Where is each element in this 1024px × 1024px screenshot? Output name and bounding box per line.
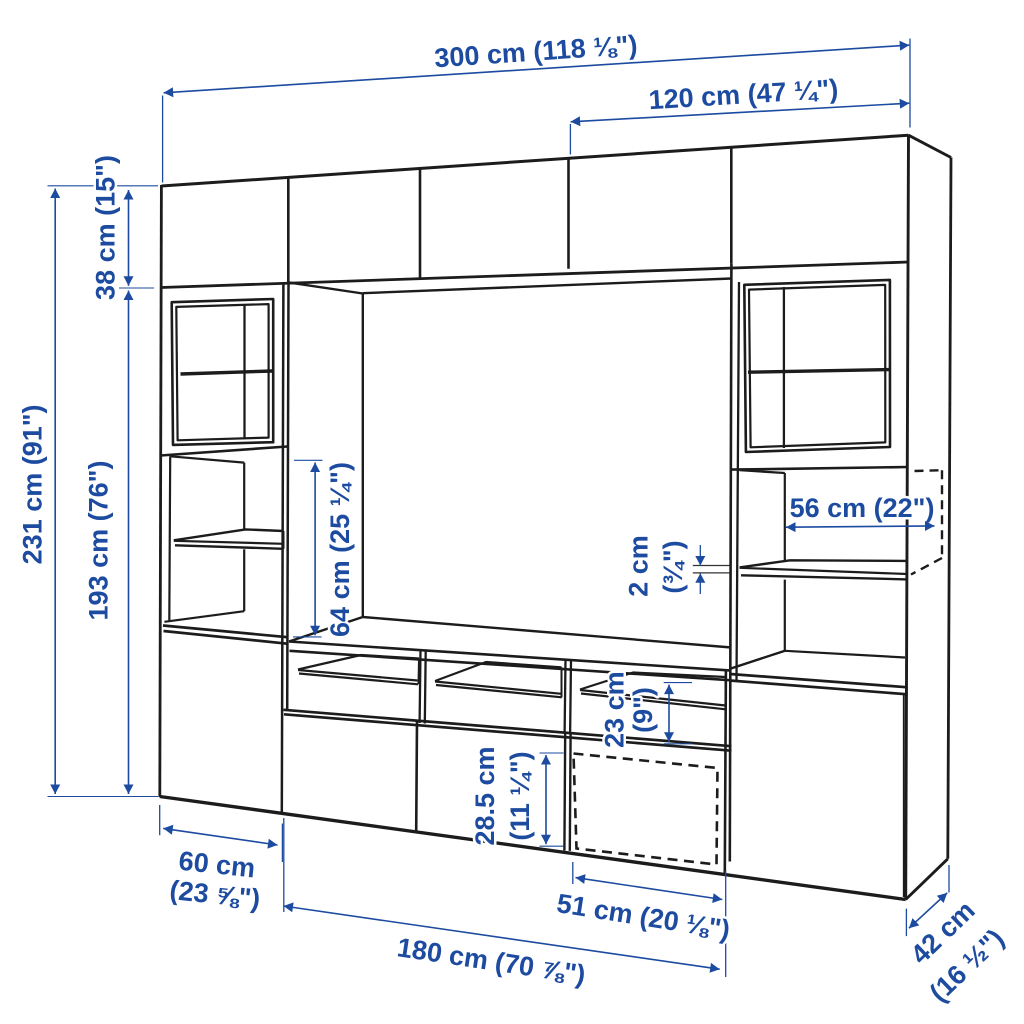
svg-text:231 cm (91"): 231 cm (91"): [18, 404, 48, 564]
svg-text:64 cm (25 ¼"): 64 cm (25 ¼"): [325, 462, 355, 637]
svg-text:28.5 cm: 28.5 cm: [470, 746, 500, 845]
svg-text:193 cm (76"): 193 cm (76"): [83, 461, 113, 621]
svg-text:56 cm (22"): 56 cm (22"): [790, 493, 935, 523]
svg-text:(11 ¼"): (11 ¼"): [505, 751, 535, 840]
svg-text:(9"): (9"): [628, 687, 658, 733]
svg-text:38 cm (15"): 38 cm (15"): [91, 155, 121, 300]
svg-text:2 cm: 2 cm: [624, 535, 654, 597]
svg-text:(¾"): (¾"): [658, 540, 688, 593]
svg-text:23 cm: 23 cm: [600, 671, 630, 748]
